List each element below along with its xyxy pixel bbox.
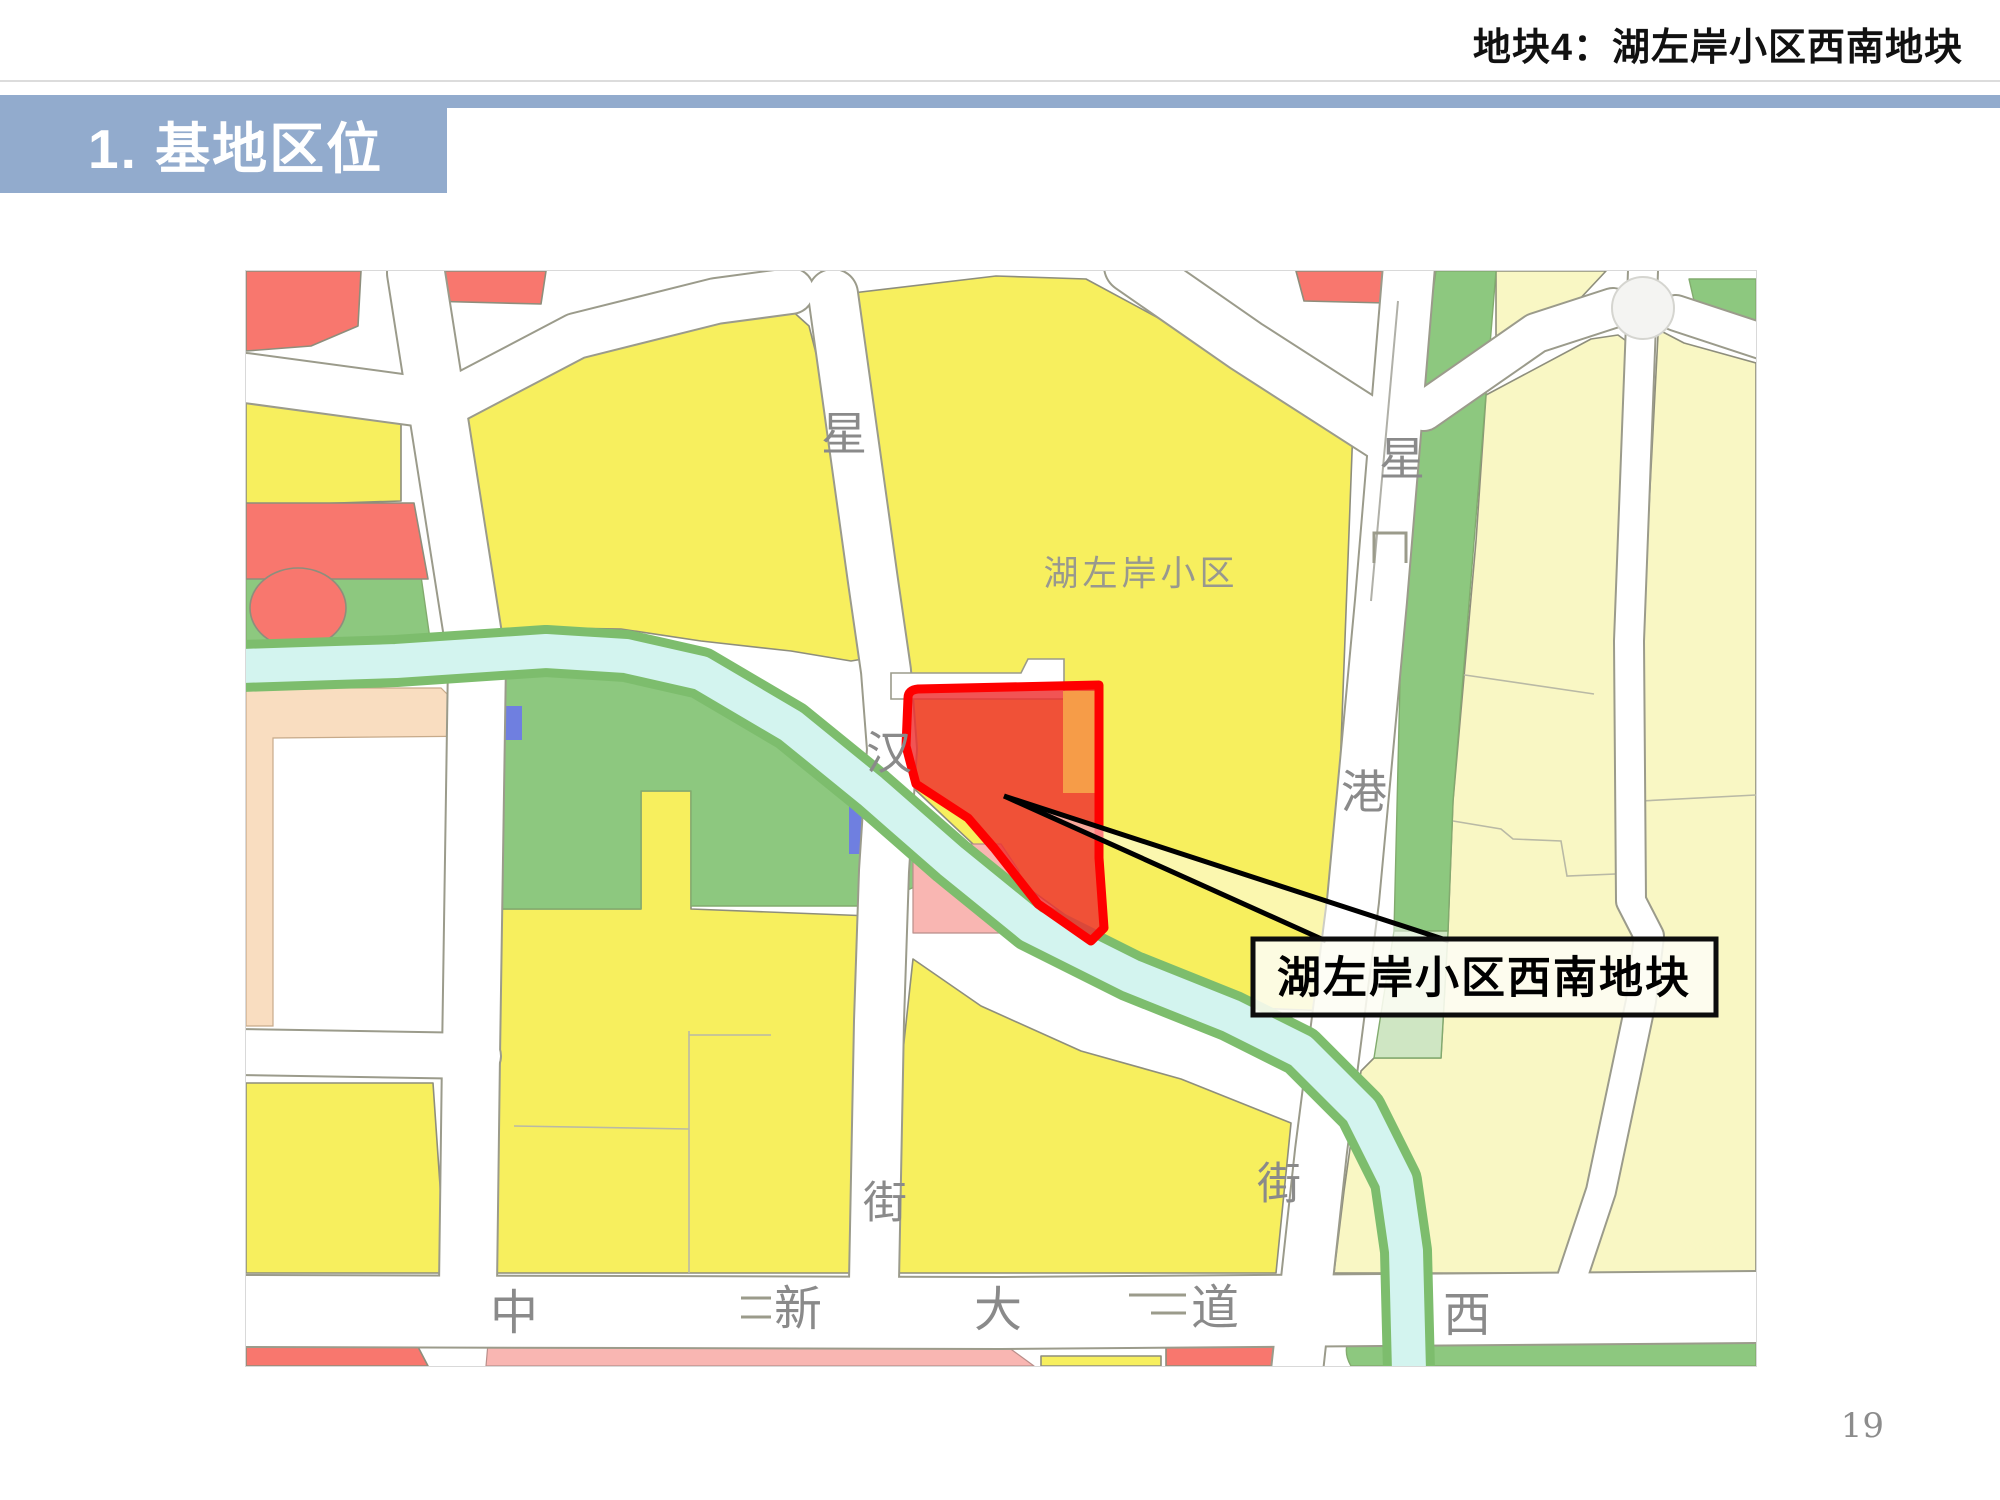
slide: 地块4：湖左岸小区西南地块 1. 基地区位	[0, 0, 2000, 1500]
page-number: 19	[1841, 1406, 1884, 1446]
road-label: 街	[1257, 1159, 1301, 1208]
road-label: 西	[1443, 1289, 1491, 1342]
road-label: 中	[490, 1287, 538, 1340]
zoning-map: 星 汉 街 星 港 街 中 新 大 道 西 湖左岸小区 湖左岸小区西南地块	[245, 270, 1757, 1367]
road-label: 汉	[866, 727, 912, 779]
road-label: 新	[774, 1283, 822, 1336]
parcel-yellow	[1041, 1356, 1161, 1366]
road	[246, 378, 416, 401]
road-label: 星	[1379, 433, 1425, 485]
road-label: 星	[821, 408, 867, 460]
district-label: 湖左岸小区	[1043, 554, 1238, 593]
title-divider	[0, 80, 2000, 82]
parcel-yellow	[246, 1083, 446, 1273]
parcel-red	[246, 503, 428, 579]
parcel-red	[246, 271, 361, 351]
section-title: 1. 基地区位	[88, 104, 383, 184]
parcel-red	[1296, 271, 1389, 303]
road-label: 道	[1191, 1282, 1239, 1335]
road-label: 街	[863, 1178, 907, 1227]
road-label: 港	[1341, 766, 1387, 818]
callout-text: 湖左岸小区西南地块	[1277, 953, 1691, 1002]
roundabout	[1612, 277, 1674, 339]
section-banner: 1. 基地区位	[0, 95, 447, 193]
parcel-red-blob	[250, 568, 346, 648]
slide-title: 地块4：湖左岸小区西南地块	[1473, 16, 1963, 71]
road-label: 大	[974, 1284, 1022, 1337]
zoning-map-svg: 星 汉 街 星 港 街 中 新 大 道 西 湖左岸小区 湖左岸小区西南地块	[246, 271, 1756, 1366]
road	[246, 1052, 478, 1056]
plot-orange-subzone	[1063, 691, 1099, 793]
